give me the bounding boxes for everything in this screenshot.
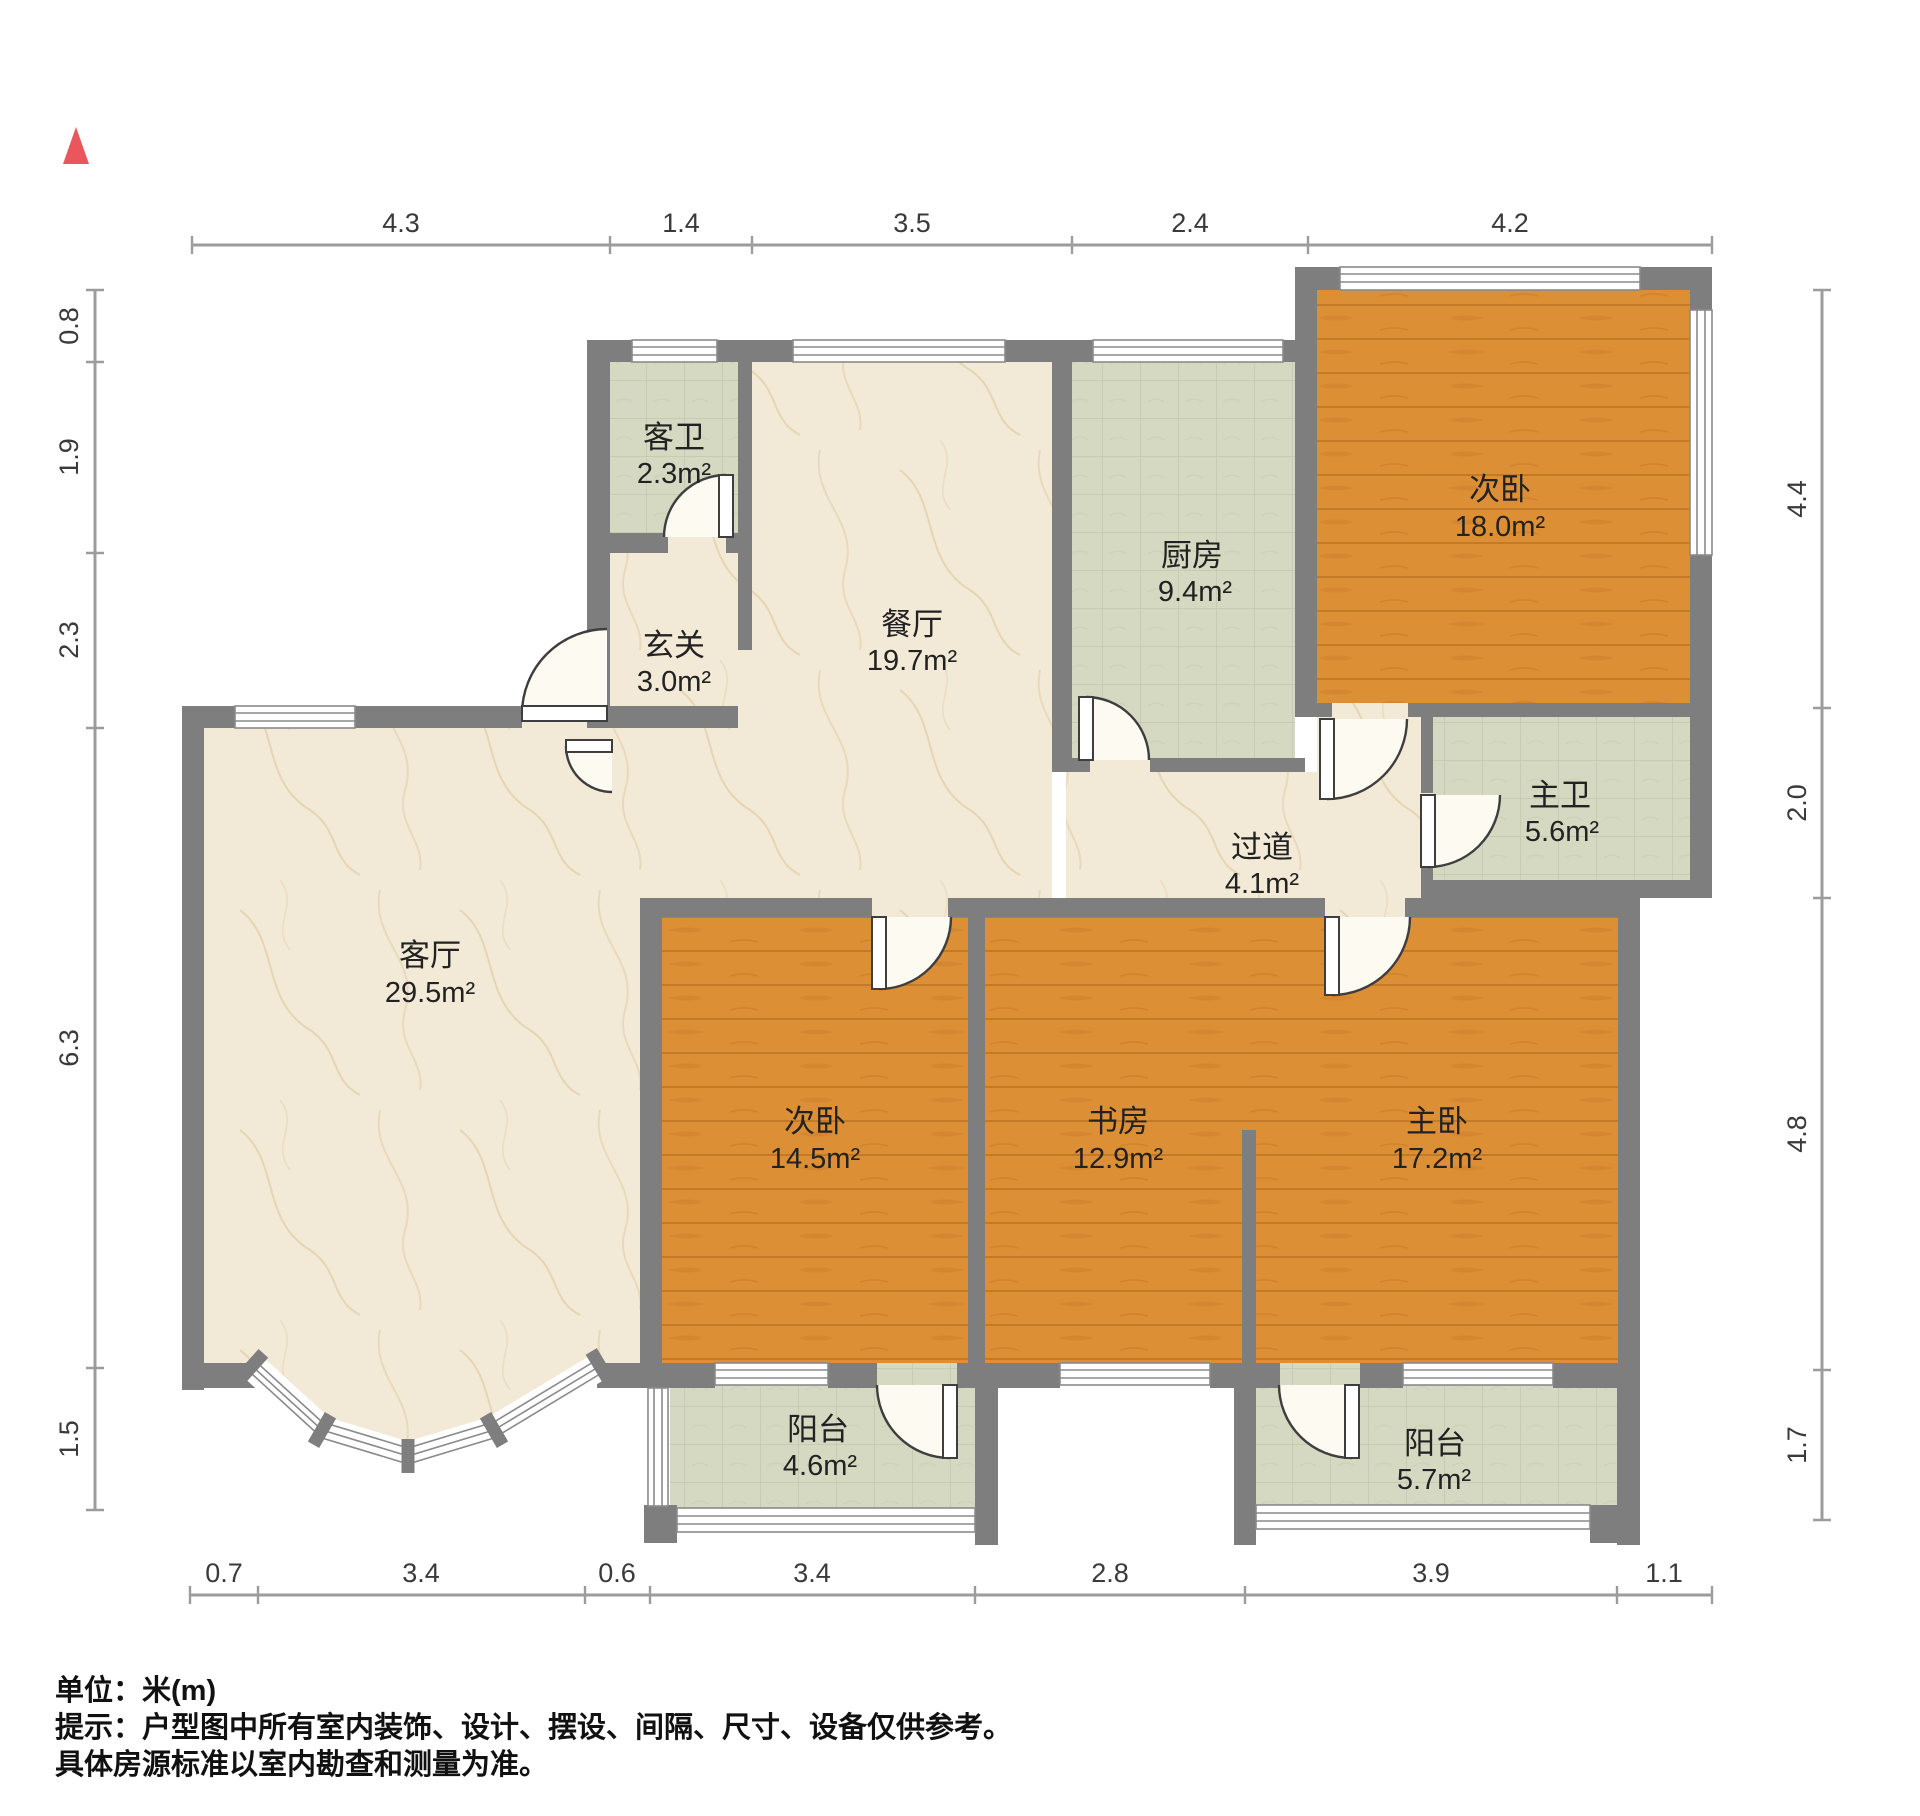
floor-plan-canvas: 客卫 2.3m² 玄关 3.0m² 餐厅 19.7m² 厨房 9.4m² 次卧 … (0, 0, 1920, 1816)
note-disclaimer-1: 提示：户型图中所有室内装饰、设计、摆设、间隔、尺寸、设备仅供参考。 (55, 1710, 1012, 1744)
dim-value: 3.5 (893, 208, 931, 238)
dim-value: 3.4 (402, 1558, 440, 1588)
window (715, 1363, 828, 1385)
room-label-living: 客厅 (399, 938, 461, 973)
room-label-corridor: 过道 (1231, 830, 1293, 865)
window (1060, 1363, 1210, 1385)
room-label-foyer: 玄关 (643, 628, 705, 663)
dim-value: 1.4 (662, 208, 700, 238)
window (1340, 267, 1640, 290)
floor-plan-page: 客卫 2.3m² 玄关 3.0m² 餐厅 19.7m² 厨房 9.4m² 次卧 … (0, 0, 1920, 1816)
window (793, 340, 1005, 362)
dim-value: 1.9 (54, 438, 84, 476)
dim-value: 3.9 (1412, 1558, 1450, 1588)
dim-value: 4.3 (382, 208, 420, 238)
dim-value: 0.6 (598, 1558, 636, 1588)
room-label-bedroom2: 次卧 (784, 1104, 846, 1139)
room-label-balcony2: 阳台 (1404, 1426, 1466, 1461)
window (1093, 340, 1283, 362)
room-area-bedroom2: 14.5m² (770, 1143, 861, 1175)
note-unit: 单位：米(m) (55, 1673, 216, 1707)
room-area-master-bath: 5.6m² (1525, 816, 1599, 848)
dim-value: 4.8 (1782, 1115, 1812, 1153)
note-disclaimer-2: 具体房源标准以室内勘查和测量为准。 (55, 1747, 548, 1781)
room-area-master-bedroom: 17.2m² (1392, 1143, 1483, 1175)
room-area-balcony1: 4.6m² (783, 1450, 857, 1482)
room-label-guest-bath: 客卫 (643, 420, 705, 455)
room-label-master-bedroom: 主卧 (1406, 1104, 1468, 1139)
window (1690, 310, 1712, 555)
window (648, 1388, 668, 1506)
window (677, 1508, 975, 1532)
room-label-kitchen: 厨房 (1161, 538, 1223, 573)
dim-value: 0.8 (54, 307, 84, 345)
dim-value: 6.3 (54, 1029, 84, 1067)
room-label-master-bath: 主卫 (1529, 778, 1591, 813)
dim-value: 2.4 (1171, 208, 1209, 238)
room-area-dining: 19.7m² (867, 645, 958, 677)
window (1256, 1505, 1590, 1529)
dim-value: 0.7 (205, 1558, 243, 1588)
dim-value: 2.8 (1091, 1558, 1129, 1588)
room-label-study: 书房 (1087, 1104, 1149, 1139)
window (632, 340, 717, 362)
dim-value: 1.5 (54, 1420, 84, 1458)
room-label-bedroom2-top: 次卧 (1469, 472, 1531, 507)
room-area-corridor: 4.1m² (1225, 868, 1299, 900)
window (1403, 1363, 1553, 1385)
dim-value: 1.1 (1645, 1558, 1683, 1588)
dim-value: 4.2 (1491, 208, 1529, 238)
dim-value: 1.7 (1782, 1426, 1812, 1464)
room-area-bedroom2-top: 18.0m² (1455, 511, 1546, 543)
room-area-kitchen: 9.4m² (1158, 576, 1232, 608)
dim-value: 4.4 (1782, 480, 1812, 518)
room-area-study: 12.9m² (1073, 1143, 1164, 1175)
room-area-living: 29.5m² (385, 977, 476, 1009)
room-area-balcony2: 5.7m² (1397, 1464, 1471, 1496)
room-label-dining: 餐厅 (881, 607, 943, 642)
room-label-balcony1: 阳台 (787, 1412, 849, 1447)
room-area-foyer: 3.0m² (637, 666, 711, 698)
dim-value: 3.4 (793, 1558, 831, 1588)
room-area-guest-bath: 2.3m² (637, 458, 711, 490)
window (235, 706, 355, 728)
dim-value: 2.3 (54, 621, 84, 659)
dim-value: 2.0 (1782, 784, 1812, 822)
